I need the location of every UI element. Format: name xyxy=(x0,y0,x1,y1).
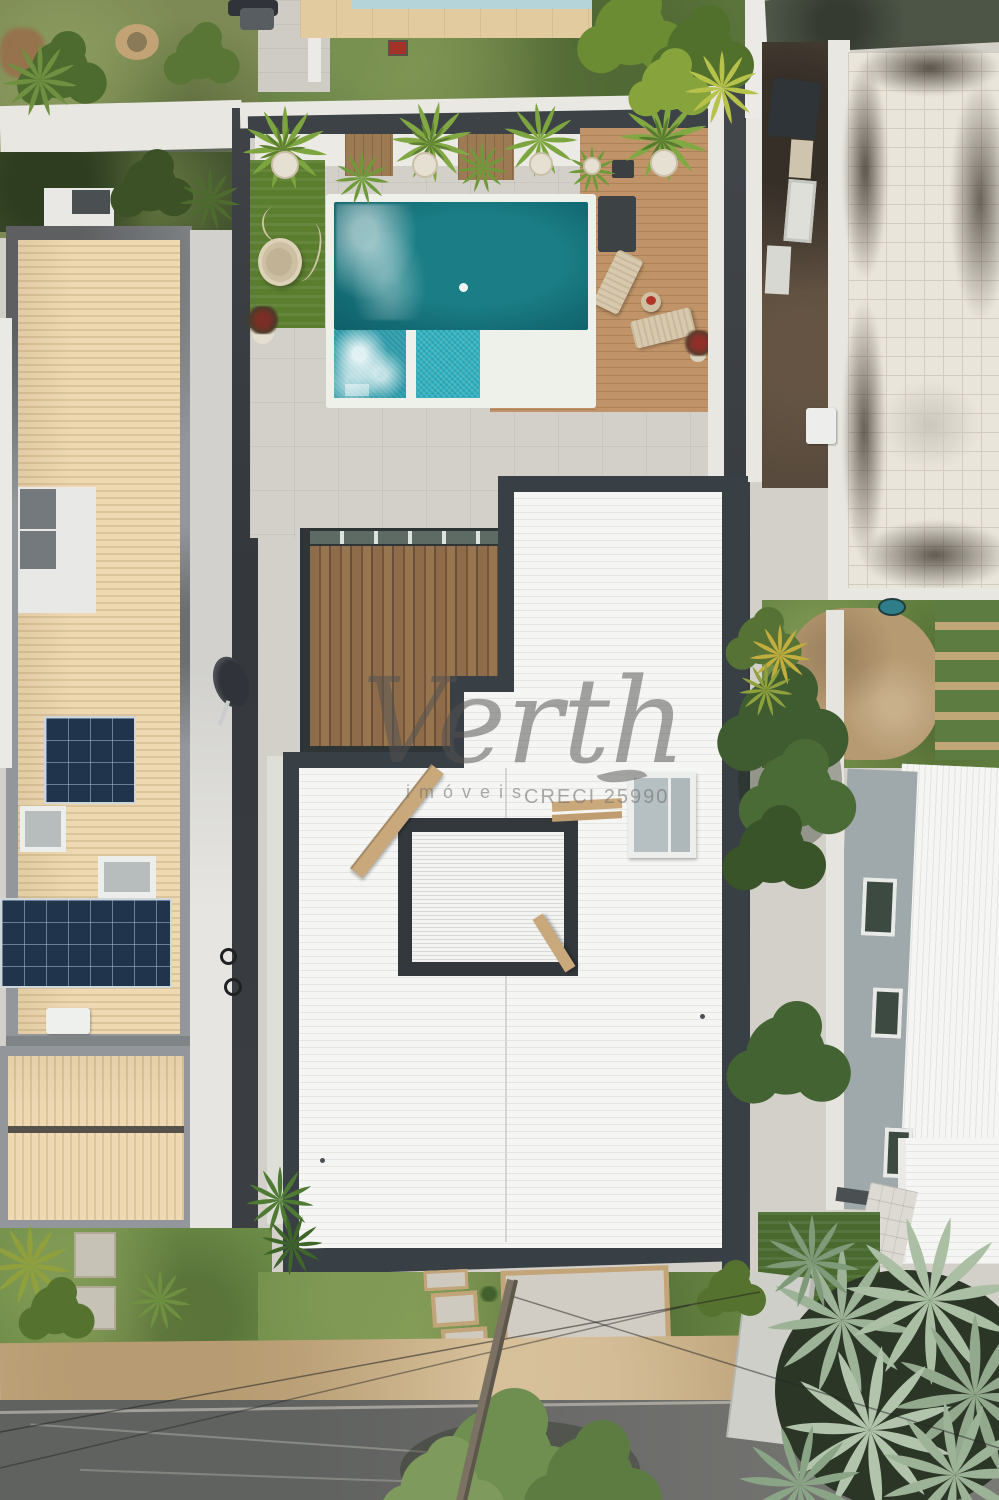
watermark-subtitle: imóveis xyxy=(406,782,530,803)
aerial-photo: Verth imóveis CRECI 25990 xyxy=(0,0,999,1500)
watermark: Verth imóveis CRECI 25990 xyxy=(0,0,999,1500)
watermark-brand: Verth xyxy=(362,662,686,780)
watermark-license: CRECI 25990 xyxy=(524,786,669,809)
